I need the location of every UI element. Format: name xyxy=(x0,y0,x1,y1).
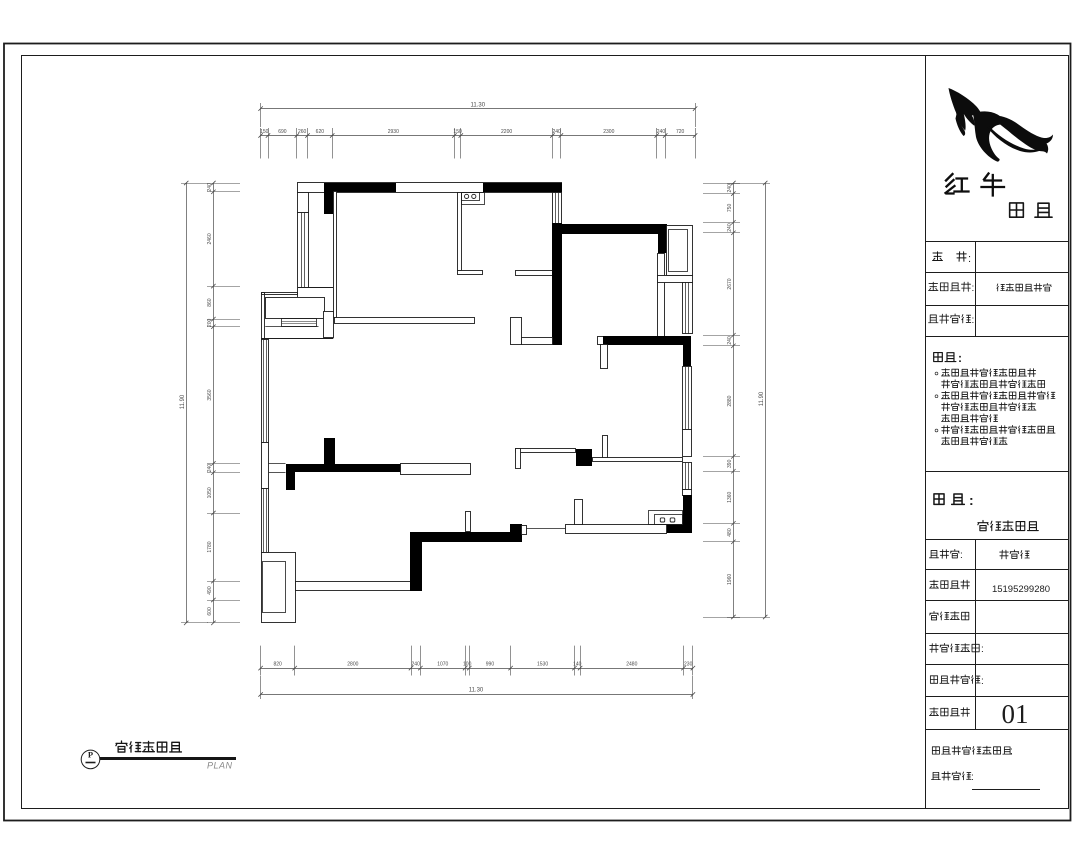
svg-text:240: 240 xyxy=(552,129,561,135)
svg-text:390: 390 xyxy=(727,459,733,468)
svg-text:990: 990 xyxy=(486,662,495,668)
svg-text:150: 150 xyxy=(260,129,269,135)
svg-text:140: 140 xyxy=(573,662,582,668)
svg-text:11.30: 11.30 xyxy=(471,103,486,109)
svg-text:11.90: 11.90 xyxy=(759,391,765,406)
svg-text::: : xyxy=(1010,746,1013,757)
svg-text:01: 01 xyxy=(1002,699,1029,729)
svg-text:240: 240 xyxy=(207,183,213,192)
svg-text:240: 240 xyxy=(727,184,733,193)
svg-text:1360: 1360 xyxy=(727,491,733,502)
svg-text:1050: 1050 xyxy=(207,487,213,498)
svg-text:PLAN: PLAN xyxy=(207,761,233,771)
svg-text:15195299280: 15195299280 xyxy=(992,584,1050,595)
svg-text:620: 620 xyxy=(316,129,325,135)
svg-text::: : xyxy=(968,253,971,265)
svg-text:100: 100 xyxy=(463,662,472,668)
svg-text:240: 240 xyxy=(207,464,213,473)
svg-text:2800: 2800 xyxy=(347,662,358,668)
svg-text:2300: 2300 xyxy=(603,129,614,135)
svg-text:860: 860 xyxy=(207,298,213,307)
svg-text::: : xyxy=(958,351,962,365)
svg-text:150: 150 xyxy=(453,129,462,135)
svg-text:1960: 1960 xyxy=(727,574,733,585)
svg-text:2930: 2930 xyxy=(388,129,399,135)
svg-text:720: 720 xyxy=(676,129,685,135)
svg-text:690: 690 xyxy=(278,129,287,135)
svg-text:1070: 1070 xyxy=(437,662,448,668)
svg-text:490: 490 xyxy=(207,586,213,595)
svg-text:11.90: 11.90 xyxy=(180,394,186,409)
svg-text:600: 600 xyxy=(207,607,213,616)
svg-text::: : xyxy=(960,550,963,561)
svg-text:240: 240 xyxy=(412,662,421,668)
svg-text:240: 240 xyxy=(727,223,733,232)
svg-text:2880: 2880 xyxy=(727,395,733,406)
svg-text:260: 260 xyxy=(298,129,307,135)
svg-text::: : xyxy=(969,492,974,508)
svg-text:2480: 2480 xyxy=(626,662,637,668)
svg-text:1530: 1530 xyxy=(537,662,548,668)
svg-text:820: 820 xyxy=(273,662,282,668)
svg-text:240: 240 xyxy=(727,336,733,345)
svg-text::: : xyxy=(981,676,984,687)
svg-text:2670: 2670 xyxy=(727,278,733,289)
svg-text:480: 480 xyxy=(727,528,733,537)
svg-text:P: P xyxy=(88,750,93,760)
svg-text:230: 230 xyxy=(684,662,693,668)
svg-text:2460: 2460 xyxy=(207,233,213,244)
svg-text:1780: 1780 xyxy=(207,541,213,552)
svg-text::: : xyxy=(972,315,975,326)
svg-text:11.30: 11.30 xyxy=(469,688,484,694)
svg-text:200: 200 xyxy=(207,319,213,328)
svg-text::: : xyxy=(972,283,975,294)
svg-text::: : xyxy=(971,772,974,783)
svg-text::: : xyxy=(981,644,984,655)
svg-text:3560: 3560 xyxy=(207,389,213,400)
svg-text:240: 240 xyxy=(657,129,666,135)
svg-text:2200: 2200 xyxy=(501,129,512,135)
svg-text:750: 750 xyxy=(727,204,733,213)
